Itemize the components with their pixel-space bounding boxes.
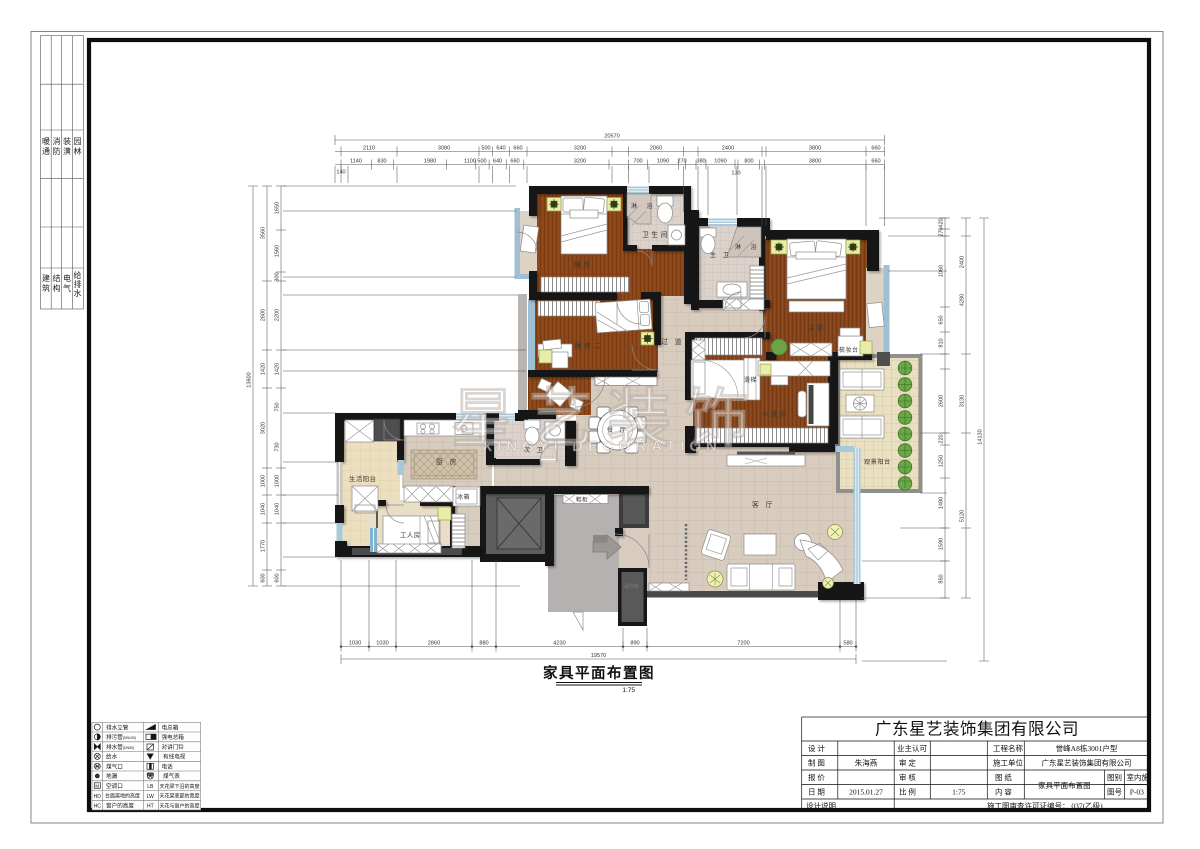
svg-text:餐 厅: 餐 厅: [607, 426, 628, 434]
svg-text:冰箱: 冰箱: [457, 493, 470, 501]
svg-text:2015.01.27: 2015.01.27: [849, 788, 883, 797]
svg-text:水: 水: [74, 288, 82, 298]
svg-text:750: 750: [275, 402, 281, 411]
svg-text:淋 浴: 淋 浴: [735, 243, 761, 251]
svg-text:装: 装: [63, 136, 71, 146]
svg-text:650: 650: [939, 315, 945, 324]
svg-text:HC: HC: [94, 804, 102, 810]
svg-text:次 卫: 次 卫: [524, 446, 545, 454]
svg-text:830: 830: [377, 159, 386, 165]
svg-text:设 计: 设 计: [808, 743, 825, 753]
svg-text:140: 140: [336, 170, 345, 176]
svg-text:3560: 3560: [261, 227, 267, 239]
svg-text:13600: 13600: [247, 372, 253, 388]
svg-text:20570: 20570: [604, 134, 620, 140]
svg-text:小孩房: 小孩房: [762, 409, 789, 418]
svg-text:580: 580: [843, 641, 852, 647]
svg-text:500: 500: [481, 146, 490, 152]
svg-text:林: 林: [74, 146, 82, 156]
svg-text:建: 建: [42, 273, 50, 283]
svg-text:卫生间: 卫生间: [642, 230, 670, 239]
svg-text:滑梯: 滑梯: [744, 376, 757, 384]
svg-text:筑: 筑: [42, 283, 50, 293]
svg-text:660: 660: [510, 159, 519, 165]
svg-text:890: 890: [630, 641, 639, 647]
svg-text:结: 结: [53, 273, 61, 283]
svg-text:3200: 3200: [574, 146, 586, 152]
svg-text:审 核: 审 核: [899, 772, 916, 782]
svg-text:电话: 电话: [162, 762, 174, 770]
svg-text:主卧: 主卧: [808, 323, 827, 332]
svg-text:厨 房: 厨 房: [436, 457, 459, 466]
svg-text:排水立管: 排水立管: [106, 723, 129, 731]
svg-text:270: 270: [677, 159, 686, 165]
svg-text:防: 防: [53, 146, 61, 156]
svg-text:1040: 1040: [275, 503, 281, 515]
svg-text:1590: 1590: [939, 538, 945, 550]
svg-text:800: 800: [744, 159, 753, 165]
svg-text:380: 380: [696, 159, 705, 165]
svg-text:设计说明: 设计说明: [806, 801, 836, 811]
svg-text:640: 640: [493, 159, 502, 165]
svg-text:图 纸: 图 纸: [995, 772, 1012, 782]
svg-text:1980: 1980: [424, 159, 436, 165]
svg-text:1650: 1650: [275, 202, 281, 214]
svg-text:2110: 2110: [363, 146, 375, 152]
svg-text:报 价: 报 价: [808, 772, 825, 782]
svg-text:660: 660: [871, 159, 880, 165]
svg-text:1140: 1140: [350, 159, 362, 165]
svg-text:施工单位: 施工单位: [993, 758, 1023, 768]
svg-text:3130: 3130: [960, 395, 966, 407]
svg-text:2200: 2200: [275, 309, 281, 321]
svg-text:天花与窗户的高度: 天花与窗户的高度: [160, 802, 200, 809]
svg-text:审 定: 审 定: [899, 758, 916, 768]
svg-text:内 容: 内 容: [995, 787, 1012, 797]
svg-text:1090: 1090: [657, 159, 669, 165]
svg-text:给: 给: [74, 270, 82, 280]
svg-text:过 道: 过 道: [661, 337, 684, 346]
svg-text:LW: LW: [147, 794, 154, 800]
svg-text:600: 600: [261, 573, 267, 582]
svg-text:广东星艺装饰集团有限公司: 广东星艺装饰集团有限公司: [875, 720, 1079, 739]
svg-text:14130: 14130: [978, 429, 984, 445]
svg-text:煤气表: 煤气表: [163, 772, 180, 780]
svg-text:主 卫: 主 卫: [710, 251, 731, 259]
svg-text:300: 300: [275, 272, 281, 281]
svg-text:420: 420: [939, 218, 945, 227]
svg-text:图号: 图号: [1107, 788, 1122, 797]
svg-text:气: 气: [63, 283, 71, 293]
svg-text:地漏: 地漏: [106, 772, 118, 780]
svg-text:空调口: 空调口: [106, 782, 123, 790]
svg-text:2400: 2400: [722, 146, 734, 152]
svg-text:比 例: 比 例: [899, 787, 916, 797]
svg-text:朱海燕: 朱海燕: [855, 758, 878, 768]
svg-text:睡房: 睡房: [574, 260, 593, 269]
svg-text:天花梁底部的宽度: 天花梁底部的宽度: [160, 793, 200, 800]
svg-text:1000: 1000: [261, 475, 267, 487]
svg-text:880: 880: [479, 641, 488, 647]
svg-text:1030: 1030: [349, 641, 361, 647]
svg-text:图别: 图别: [1107, 773, 1122, 782]
svg-text:生活阳台: 生活阳台: [349, 474, 377, 483]
svg-text:2600: 2600: [939, 395, 945, 407]
svg-text:1040: 1040: [261, 503, 267, 515]
svg-text:1000: 1000: [275, 475, 281, 487]
svg-text:暖: 暖: [42, 137, 50, 146]
svg-text:淋 浴: 淋 浴: [631, 202, 657, 210]
svg-text:XINGYI DECORATION: XINGYI DECORATION: [482, 438, 722, 455]
svg-text:施工图审查许可证编号： 037(乙级): 施工图审查许可证编号： 037(乙级): [987, 801, 1103, 811]
svg-text:园: 园: [74, 137, 82, 146]
svg-text:潢: 潢: [63, 146, 71, 156]
svg-text:1100: 1100: [464, 159, 476, 165]
svg-text:台面离地的高度: 台面离地的高度: [105, 793, 140, 800]
svg-text:660: 660: [513, 146, 522, 152]
svg-text:对讲门铃: 对讲门铃: [162, 743, 185, 751]
svg-text:业主认可: 业主认可: [897, 743, 927, 753]
svg-text:HD: HD: [94, 794, 102, 800]
svg-text:天花梁下沿的高度: 天花梁下沿的高度: [160, 783, 200, 790]
svg-text:7200: 7200: [737, 641, 749, 647]
svg-text:1:75: 1:75: [622, 687, 635, 694]
svg-text:3080: 3080: [438, 146, 450, 152]
svg-text:工人房: 工人房: [400, 530, 421, 539]
svg-text:3020: 3020: [261, 422, 267, 434]
svg-text:2400: 2400: [960, 256, 966, 268]
svg-text:700: 700: [633, 159, 642, 165]
svg-text:给水: 给水: [106, 753, 118, 761]
svg-text:600: 600: [275, 573, 281, 582]
svg-text:P-03: P-03: [1130, 788, 1144, 797]
svg-text:强电总箱: 强电总箱: [162, 733, 185, 741]
svg-text:2600: 2600: [261, 309, 267, 321]
svg-text:1030: 1030: [376, 641, 388, 647]
svg-text:4280: 4280: [960, 294, 966, 306]
svg-text:电总箱: 电总箱: [162, 723, 179, 731]
svg-text:1090: 1090: [714, 159, 726, 165]
svg-text:工程名称: 工程名称: [993, 743, 1023, 753]
svg-text:130: 130: [731, 171, 740, 177]
svg-text:广东星艺装饰集团有限公司: 广东星艺装饰集团有限公司: [1042, 758, 1132, 768]
svg-text:家具平面布置图: 家具平面布置图: [543, 664, 655, 682]
svg-text:2860: 2860: [428, 641, 440, 647]
svg-text:HT: HT: [147, 804, 154, 810]
svg-text:睡房二: 睡房二: [575, 341, 603, 350]
svg-text:1770: 1770: [261, 540, 267, 552]
svg-text:2060: 2060: [650, 146, 662, 152]
svg-text:1560: 1560: [275, 245, 281, 257]
svg-text:730: 730: [275, 442, 281, 451]
svg-text:220: 220: [939, 434, 945, 443]
svg-text:消防梯: 消防梯: [623, 582, 639, 590]
svg-text:通: 通: [42, 146, 50, 156]
svg-text:室内施: 室内施: [1127, 772, 1150, 782]
svg-text:誉峰A8栋3001户型: 誉峰A8栋3001户型: [1056, 743, 1118, 753]
svg-text:660: 660: [871, 146, 880, 152]
svg-text:3800: 3800: [809, 159, 821, 165]
svg-text:煤气口: 煤气口: [106, 762, 123, 770]
svg-text:观景阳台: 观景阳台: [864, 458, 891, 466]
svg-text:消: 消: [53, 136, 61, 146]
svg-text:1420: 1420: [261, 363, 267, 375]
svg-text:810: 810: [939, 338, 945, 347]
svg-text:850: 850: [939, 574, 945, 583]
svg-text:1250: 1250: [939, 455, 945, 467]
svg-text:制 图: 制 图: [808, 758, 825, 768]
svg-text:窗户的高度: 窗户的高度: [106, 801, 134, 809]
svg-text:270: 270: [939, 227, 945, 236]
svg-text:1420: 1420: [275, 363, 281, 375]
svg-text:19570: 19570: [591, 653, 607, 659]
svg-text:家具平面布置图: 家具平面布置图: [1038, 780, 1091, 790]
svg-text:5120: 5120: [960, 510, 966, 522]
svg-text:1480: 1480: [939, 497, 945, 509]
svg-text:1:75: 1:75: [952, 788, 966, 797]
svg-text:500: 500: [477, 159, 486, 165]
svg-text:梳妆台: 梳妆台: [839, 346, 859, 354]
svg-text:构: 构: [53, 283, 61, 293]
svg-text:电: 电: [63, 273, 71, 283]
svg-text:4230: 4230: [553, 641, 565, 647]
svg-text:有线电视: 有线电视: [163, 753, 186, 761]
svg-text:640: 640: [496, 146, 505, 152]
svg-text:LB: LB: [147, 784, 154, 790]
svg-text:M: M: [95, 784, 99, 789]
svg-text:客 厅: 客 厅: [752, 500, 775, 509]
svg-text:日 期: 日 期: [808, 788, 825, 797]
svg-text:1060: 1060: [939, 265, 945, 277]
svg-text:3800: 3800: [809, 146, 821, 152]
svg-text:3200: 3200: [574, 159, 586, 165]
svg-text:鞋柜: 鞋柜: [576, 496, 588, 504]
svg-text:排: 排: [74, 279, 82, 289]
